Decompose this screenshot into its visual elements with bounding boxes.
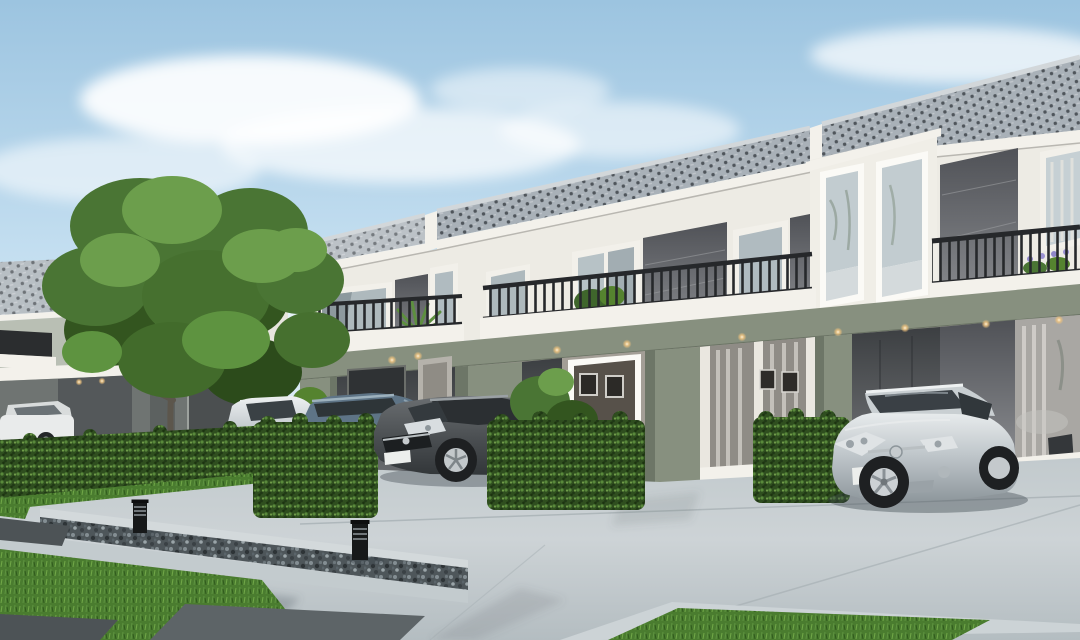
hedge-top-tuft [358, 413, 374, 429]
picture-frame [580, 374, 597, 395]
shrub [538, 368, 574, 396]
hedge-top-tuft [820, 410, 836, 426]
hedge-top-tuft [758, 411, 774, 427]
bay-window-glass [882, 159, 922, 268]
downlight [553, 346, 562, 355]
hedge-top-tuft [153, 425, 167, 439]
headlight-lens [861, 438, 868, 445]
bay-window-glass [826, 171, 858, 273]
downlight [414, 352, 423, 361]
picture-frame [782, 372, 798, 392]
foliage [274, 312, 350, 368]
hedge-top-tuft [23, 433, 37, 447]
hedge-box-1 [253, 413, 378, 518]
downlight [1055, 316, 1064, 325]
left-house-balcony-railing [0, 330, 52, 357]
bollard-cap [351, 520, 370, 524]
pillar-shade [645, 350, 655, 491]
hedge-box-2 [487, 411, 645, 510]
hedge-top-tuft [83, 429, 97, 443]
opel-badge [890, 446, 902, 458]
foliage-highlight [122, 176, 222, 244]
hedge-top-tuft [788, 408, 804, 424]
fog-light [938, 466, 950, 478]
foliage-highlight [182, 311, 270, 369]
opel-badge [403, 438, 410, 445]
foliage-highlight [80, 233, 160, 287]
downlight [76, 379, 83, 386]
foliage-highlight [62, 331, 122, 373]
hedge-top-tuft [532, 411, 548, 427]
hedge-top-tuft [223, 421, 237, 435]
downlight [388, 356, 397, 365]
downlight [834, 328, 843, 337]
wheel-alloy [988, 457, 1010, 479]
render-canvas [0, 0, 1080, 640]
headlight-lens [935, 441, 942, 448]
headlight-lens [846, 440, 854, 448]
foliage-highlight [265, 228, 327, 272]
picture-frame [606, 376, 623, 397]
wheel-cap [881, 479, 888, 486]
downlight [623, 340, 632, 349]
hedge-box [253, 422, 378, 518]
hedge-top-tuft [494, 414, 510, 430]
downlight [99, 378, 106, 385]
downlight [901, 324, 910, 333]
hedge-top-tuft [612, 411, 628, 427]
scene-svg [0, 0, 1080, 640]
hedge-top-tuft [572, 413, 588, 429]
cloud [430, 68, 610, 112]
headlight-lens [425, 425, 431, 431]
hedge-top-tuft [292, 413, 308, 429]
downlight [982, 320, 991, 329]
picture-frame [760, 370, 775, 389]
bollard-cap [132, 500, 149, 504]
glass-car-reflection [1016, 410, 1068, 434]
entry-frame [700, 346, 710, 488]
hedge-box [487, 420, 645, 510]
right-ground-window [1012, 315, 1080, 474]
hedge-top-tuft [326, 415, 342, 431]
hedge-top-tuft [260, 416, 276, 432]
downlight [738, 333, 747, 342]
